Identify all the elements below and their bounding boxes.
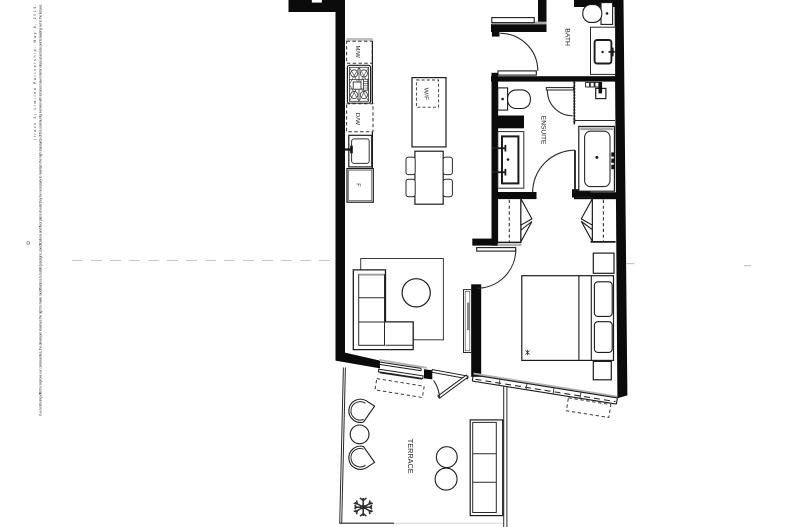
svg-text:D/W: D/W <box>354 113 360 126</box>
svg-text:ENSUITE: ENSUITE <box>540 116 547 145</box>
svg-text:F: F <box>355 183 361 187</box>
svg-text:W/F: W/F <box>422 88 428 101</box>
svg-text:M/W: M/W <box>354 46 360 59</box>
svg-text:In a continuing effort to impr: In a continuing effort to improve our co… <box>38 4 42 416</box>
svg-text:TERRACE: TERRACE <box>406 439 415 474</box>
svg-text:BATH: BATH <box>563 28 570 46</box>
